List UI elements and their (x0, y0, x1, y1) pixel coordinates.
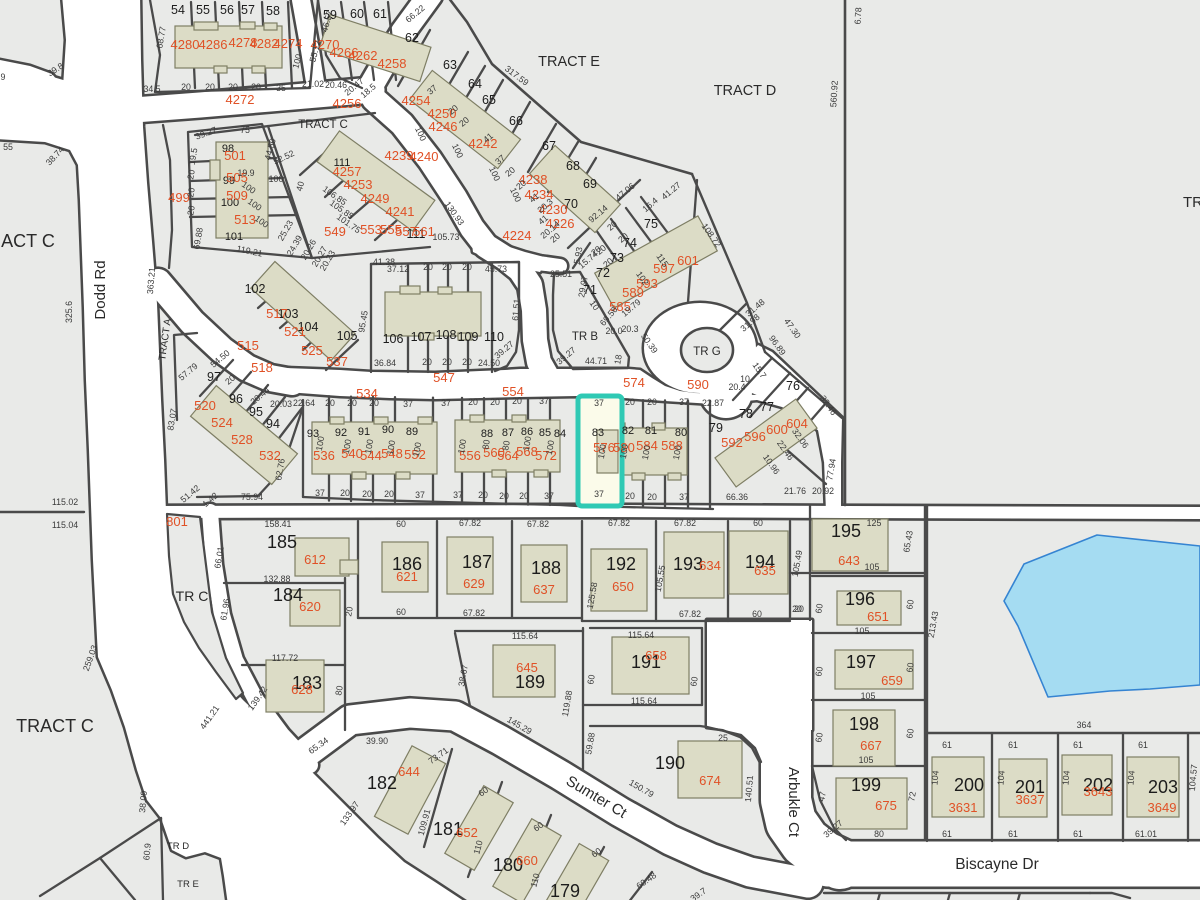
svg-text:20: 20 (625, 491, 635, 501)
svg-text:78: 78 (739, 407, 753, 421)
svg-text:675: 675 (875, 798, 897, 813)
svg-text:20: 20 (205, 82, 215, 92)
svg-text:635: 635 (754, 563, 776, 578)
svg-text:4240: 4240 (410, 149, 439, 164)
svg-text:3637: 3637 (1016, 792, 1045, 807)
svg-text:20: 20 (442, 262, 452, 272)
svg-text:91: 91 (358, 426, 370, 438)
svg-text:20.03: 20.03 (270, 399, 292, 409)
svg-text:20: 20 (647, 397, 657, 407)
svg-text:67: 67 (542, 139, 556, 153)
svg-text:60.9: 60.9 (141, 843, 152, 861)
svg-text:82: 82 (622, 425, 634, 437)
svg-text:518: 518 (251, 360, 273, 375)
svg-text:637: 637 (533, 582, 555, 597)
svg-text:Arbukle Ct: Arbukle Ct (785, 767, 802, 838)
svg-text:55: 55 (196, 3, 210, 17)
svg-text:651: 651 (867, 609, 889, 624)
svg-text:35: 35 (276, 83, 286, 93)
svg-text:203: 203 (1148, 777, 1178, 797)
svg-text:188: 188 (531, 558, 561, 578)
svg-text:83: 83 (592, 427, 604, 439)
svg-text:TR E: TR E (177, 879, 199, 890)
svg-text:60: 60 (752, 609, 762, 619)
svg-text:104: 104 (995, 770, 1006, 786)
svg-text:20.92: 20.92 (812, 486, 834, 496)
svg-text:TRACT D: TRACT D (714, 83, 777, 99)
svg-text:60: 60 (904, 662, 916, 673)
svg-text:65: 65 (482, 93, 496, 107)
svg-text:102: 102 (245, 282, 266, 296)
svg-text:197: 197 (846, 652, 876, 672)
svg-text:20: 20 (519, 491, 529, 501)
svg-text:79: 79 (709, 421, 723, 435)
svg-text:667: 667 (860, 738, 882, 753)
svg-text:158.41: 158.41 (265, 519, 292, 529)
svg-text:TRACT C: TRACT C (16, 716, 94, 736)
svg-text:195: 195 (831, 521, 861, 541)
svg-text:659: 659 (881, 673, 903, 688)
svg-text:47: 47 (816, 791, 828, 802)
svg-text:20: 20 (442, 357, 452, 367)
svg-text:61: 61 (1008, 829, 1018, 839)
svg-text:520: 520 (194, 398, 216, 413)
svg-text:650: 650 (612, 579, 634, 594)
svg-text:61.51: 61.51 (510, 298, 522, 321)
svg-text:117.72: 117.72 (272, 653, 298, 663)
svg-text:37: 37 (594, 398, 604, 408)
svg-text:592: 592 (721, 435, 743, 450)
svg-text:24.50: 24.50 (478, 358, 500, 368)
svg-text:20: 20 (384, 489, 394, 499)
svg-text:524: 524 (211, 415, 233, 430)
svg-text:60: 60 (753, 518, 763, 528)
svg-text:67.82: 67.82 (463, 608, 485, 618)
svg-text:TR: TR (1183, 194, 1200, 211)
svg-text:Dodd Rd: Dodd Rd (92, 260, 109, 319)
svg-text:674: 674 (699, 773, 721, 788)
svg-text:20: 20 (343, 606, 355, 617)
svg-text:20: 20 (468, 397, 478, 407)
svg-text:9: 9 (1, 72, 6, 82)
svg-text:77: 77 (760, 400, 774, 414)
svg-text:4256: 4256 (333, 96, 362, 111)
svg-text:64: 64 (468, 77, 482, 91)
svg-text:115.64: 115.64 (512, 631, 538, 641)
svg-text:69: 69 (583, 177, 597, 191)
svg-text:20: 20 (478, 490, 488, 500)
svg-text:94: 94 (266, 417, 280, 431)
svg-text:3631: 3631 (949, 800, 978, 815)
svg-text:115.02: 115.02 (52, 497, 78, 507)
svg-text:TRACT C: TRACT C (298, 119, 348, 131)
svg-text:25: 25 (718, 733, 728, 743)
svg-text:20: 20 (462, 357, 472, 367)
svg-text:4274: 4274 (274, 36, 303, 51)
svg-text:198: 198 (849, 714, 879, 734)
svg-text:20: 20 (490, 397, 500, 407)
svg-text:20: 20 (369, 398, 379, 408)
svg-text:185: 185 (267, 532, 297, 552)
svg-text:20.3: 20.3 (621, 324, 638, 334)
svg-text:105: 105 (337, 329, 358, 343)
svg-text:60: 60 (350, 7, 364, 21)
svg-text:115.64: 115.64 (628, 630, 654, 640)
svg-text:60: 60 (813, 666, 825, 677)
svg-text:68: 68 (566, 159, 580, 173)
svg-text:4286: 4286 (199, 37, 228, 52)
svg-text:95: 95 (249, 405, 263, 419)
svg-text:45.73: 45.73 (485, 264, 507, 274)
svg-text:115.64: 115.64 (631, 696, 657, 706)
svg-text:20: 20 (340, 488, 350, 498)
svg-text:80: 80 (874, 829, 884, 839)
svg-text:20: 20 (251, 82, 261, 92)
svg-text:80: 80 (480, 439, 492, 450)
svg-text:547: 547 (433, 370, 455, 385)
svg-text:4246: 4246 (429, 119, 458, 134)
svg-text:TR G: TR G (693, 346, 721, 358)
svg-text:105: 105 (859, 755, 874, 765)
svg-text:20: 20 (462, 262, 472, 272)
svg-text:60: 60 (904, 728, 916, 739)
svg-text:Biscayne Dr: Biscayne Dr (955, 856, 1039, 873)
svg-text:36.84: 36.84 (374, 358, 396, 368)
svg-text:517: 517 (266, 306, 288, 321)
svg-text:553: 553 (360, 222, 382, 237)
svg-text:19.9: 19.9 (237, 168, 254, 178)
svg-text:55: 55 (3, 142, 13, 152)
svg-text:66: 66 (509, 114, 523, 128)
svg-text:108: 108 (436, 328, 457, 342)
svg-text:20: 20 (422, 357, 432, 367)
svg-text:84: 84 (554, 428, 566, 440)
svg-text:4241: 4241 (386, 204, 415, 219)
svg-text:38.09: 38.09 (137, 790, 149, 813)
svg-text:62: 62 (405, 31, 419, 45)
svg-text:37: 37 (403, 399, 413, 409)
svg-text:21.02: 21.02 (302, 79, 324, 89)
svg-text:621: 621 (396, 569, 418, 584)
svg-text:612: 612 (304, 552, 326, 567)
svg-text:61: 61 (942, 829, 952, 839)
svg-text:37: 37 (315, 488, 325, 498)
svg-text:20: 20 (325, 398, 335, 408)
svg-text:4253: 4253 (344, 177, 373, 192)
svg-text:325.6: 325.6 (64, 301, 74, 323)
svg-text:75: 75 (644, 217, 658, 231)
svg-text:652: 652 (456, 825, 478, 840)
svg-text:115.04: 115.04 (52, 520, 78, 530)
svg-text:179: 179 (550, 881, 580, 900)
svg-text:660: 660 (516, 853, 538, 868)
svg-text:61: 61 (1073, 740, 1083, 750)
svg-text:521: 521 (284, 324, 306, 339)
svg-text:61: 61 (942, 740, 952, 750)
svg-text:63: 63 (443, 58, 457, 72)
svg-text:80: 80 (500, 440, 512, 451)
svg-text:81: 81 (645, 425, 657, 437)
svg-text:106: 106 (383, 332, 404, 346)
svg-text:104: 104 (1125, 770, 1136, 786)
svg-text:105: 105 (865, 562, 880, 572)
svg-text:4254: 4254 (402, 93, 431, 108)
svg-text:20: 20 (499, 491, 509, 501)
svg-text:105.73: 105.73 (433, 232, 460, 242)
svg-text:60: 60 (688, 676, 700, 687)
svg-text:596: 596 (744, 429, 766, 444)
svg-text:61: 61 (1138, 740, 1148, 750)
svg-text:67.82: 67.82 (459, 518, 481, 528)
svg-text:109: 109 (458, 330, 479, 344)
svg-text:60: 60 (904, 599, 916, 610)
svg-text:76: 76 (786, 379, 800, 393)
svg-text:20: 20 (181, 82, 191, 92)
svg-text:37: 37 (679, 397, 689, 407)
svg-text:22.64: 22.64 (293, 398, 315, 408)
svg-text:105: 105 (861, 691, 876, 701)
svg-text:628: 628 (291, 682, 313, 697)
svg-text:4258: 4258 (378, 56, 407, 71)
svg-text:37: 37 (594, 489, 604, 499)
svg-text:104: 104 (929, 770, 940, 786)
svg-text:634: 634 (699, 558, 721, 573)
svg-text:643: 643 (838, 553, 860, 568)
svg-text:125: 125 (867, 518, 882, 528)
svg-text:54: 54 (171, 3, 185, 17)
svg-text:ACT C: ACT C (1, 231, 55, 251)
svg-text:60: 60 (396, 607, 406, 617)
svg-text:645: 645 (516, 660, 538, 675)
svg-text:96: 96 (229, 392, 243, 406)
svg-text:20: 20 (185, 205, 197, 216)
svg-text:6.78: 6.78 (853, 7, 864, 25)
svg-text:590: 590 (687, 377, 709, 392)
svg-text:20: 20 (362, 489, 372, 499)
svg-text:515: 515 (237, 338, 259, 353)
svg-text:88: 88 (481, 428, 493, 440)
svg-text:44.71: 44.71 (585, 356, 607, 366)
svg-text:364: 364 (1077, 720, 1092, 730)
svg-text:75: 75 (240, 125, 250, 135)
svg-text:190: 190 (655, 753, 685, 773)
svg-text:4224: 4224 (503, 228, 532, 243)
svg-text:66.36: 66.36 (726, 492, 748, 502)
svg-text:61: 61 (1008, 740, 1018, 750)
svg-text:56: 56 (220, 3, 234, 17)
svg-text:537: 537 (326, 354, 348, 369)
svg-text:104: 104 (1060, 770, 1071, 786)
svg-text:87: 87 (502, 427, 514, 439)
svg-text:39.90: 39.90 (366, 736, 388, 746)
svg-text:20: 20 (347, 398, 357, 408)
svg-text:60: 60 (585, 674, 597, 685)
svg-text:620: 620 (299, 599, 321, 614)
svg-text:196: 196 (845, 589, 875, 609)
svg-text:60: 60 (813, 732, 825, 743)
svg-text:549: 549 (324, 224, 346, 239)
svg-text:61: 61 (1073, 829, 1083, 839)
svg-text:67.82: 67.82 (608, 518, 630, 528)
svg-text:189: 189 (515, 672, 545, 692)
svg-text:3649: 3649 (1148, 800, 1177, 815)
svg-text:37: 37 (441, 398, 451, 408)
svg-text:75.94: 75.94 (241, 492, 263, 502)
svg-text:644: 644 (398, 764, 420, 779)
svg-text:105: 105 (855, 626, 870, 636)
svg-text:110: 110 (484, 330, 504, 344)
svg-text:TRACT E: TRACT E (538, 54, 600, 70)
svg-text:20: 20 (512, 396, 522, 406)
svg-text:4280: 4280 (171, 37, 200, 52)
svg-text:90: 90 (382, 424, 394, 436)
svg-text:92: 92 (335, 427, 347, 439)
svg-text:525: 525 (301, 343, 323, 358)
svg-text:192: 192 (606, 554, 636, 574)
svg-text:200: 200 (954, 775, 984, 795)
svg-text:TR B: TR B (572, 331, 599, 343)
svg-text:60: 60 (813, 603, 825, 614)
svg-text:4272: 4272 (226, 92, 255, 107)
svg-text:67.82: 67.82 (527, 519, 549, 529)
svg-text:61.01: 61.01 (1135, 829, 1157, 839)
svg-text:61: 61 (373, 7, 387, 21)
svg-text:TR C: TR C (176, 588, 209, 604)
svg-text:37: 37 (544, 491, 554, 501)
svg-text:20: 20 (794, 604, 804, 614)
svg-text:37: 37 (679, 492, 689, 502)
svg-text:501: 501 (224, 148, 246, 163)
svg-text:4262: 4262 (349, 48, 378, 63)
svg-text:22.87: 22.87 (702, 398, 724, 408)
svg-text:TR D: TR D (167, 841, 189, 852)
svg-text:37.12: 37.12 (387, 264, 409, 274)
svg-text:20: 20 (625, 397, 635, 407)
svg-text:601: 601 (677, 253, 699, 268)
svg-text:132.88: 132.88 (264, 574, 291, 584)
svg-text:20: 20 (423, 262, 433, 272)
svg-text:199: 199 (851, 775, 881, 795)
svg-text:80: 80 (333, 685, 345, 696)
svg-text:20.4: 20.4 (728, 382, 745, 392)
svg-text:107: 107 (411, 330, 432, 344)
svg-text:67.82: 67.82 (674, 518, 696, 528)
svg-text:600: 600 (766, 422, 788, 437)
svg-text:560.92: 560.92 (828, 80, 839, 108)
svg-text:20.0: 20.0 (605, 326, 622, 336)
svg-text:85: 85 (539, 427, 551, 439)
svg-text:18: 18 (612, 354, 624, 365)
svg-text:37: 37 (453, 490, 463, 500)
svg-text:528: 528 (231, 432, 253, 447)
svg-text:57: 57 (241, 3, 255, 17)
svg-text:187: 187 (462, 552, 492, 572)
svg-text:574: 574 (623, 375, 645, 390)
svg-text:3643: 3643 (1084, 784, 1113, 799)
svg-text:25.51: 25.51 (550, 269, 572, 279)
svg-text:72: 72 (906, 791, 918, 802)
svg-text:20: 20 (228, 82, 238, 92)
svg-text:513: 513 (234, 212, 256, 227)
svg-text:20: 20 (185, 187, 197, 198)
svg-text:34.5: 34.5 (143, 84, 160, 94)
svg-text:629: 629 (463, 576, 485, 591)
svg-text:58: 58 (266, 4, 280, 18)
svg-text:20: 20 (647, 492, 657, 502)
svg-text:20: 20 (185, 169, 197, 180)
svg-text:100: 100 (269, 174, 284, 184)
svg-text:101: 101 (225, 231, 243, 243)
svg-text:60: 60 (396, 519, 406, 529)
svg-text:801: 801 (166, 514, 188, 529)
svg-text:37: 37 (415, 490, 425, 500)
svg-text:89: 89 (406, 426, 418, 438)
svg-text:37: 37 (539, 396, 549, 406)
svg-text:67.82: 67.82 (679, 609, 701, 619)
svg-text:658: 658 (645, 648, 667, 663)
svg-text:97: 97 (207, 370, 221, 384)
svg-text:21.76: 21.76 (784, 486, 806, 496)
svg-text:182: 182 (367, 773, 397, 793)
